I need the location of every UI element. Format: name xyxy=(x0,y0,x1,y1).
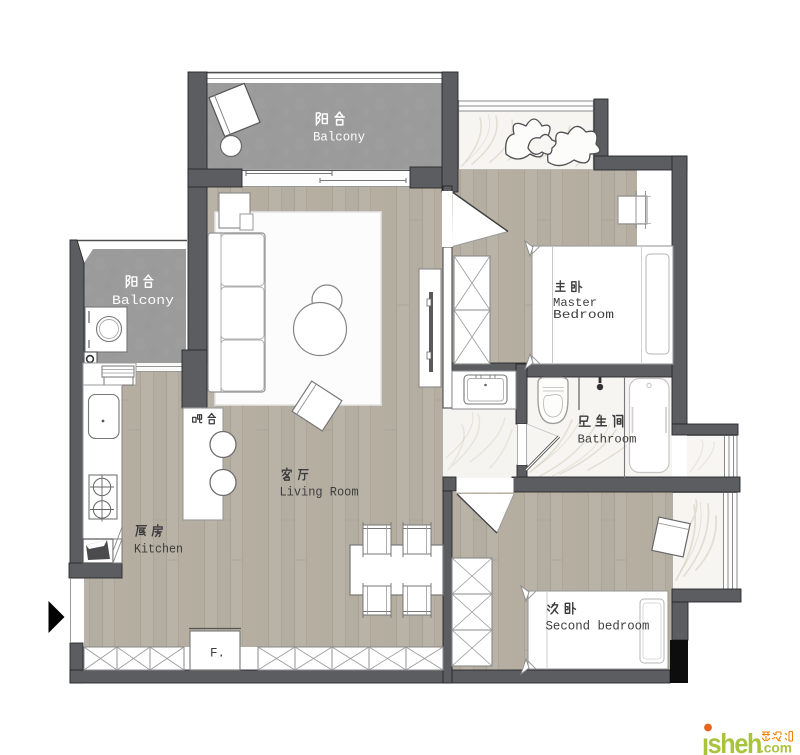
svg-text:.com: .com xyxy=(760,740,792,755)
svg-text:Second bedroom: Second bedroom xyxy=(546,620,650,634)
svg-text:Balcony: Balcony xyxy=(112,294,175,308)
svg-text:Living Room: Living Room xyxy=(280,486,359,500)
svg-text:Bedroom: Bedroom xyxy=(553,308,614,322)
svg-text:F.: F. xyxy=(210,647,225,661)
svg-text:Kitchen: Kitchen xyxy=(134,543,183,557)
svg-text:ȷsheh: ȷsheh xyxy=(701,728,761,755)
svg-text:Balcony: Balcony xyxy=(313,131,365,145)
svg-text:Bathroom: Bathroom xyxy=(578,433,637,447)
